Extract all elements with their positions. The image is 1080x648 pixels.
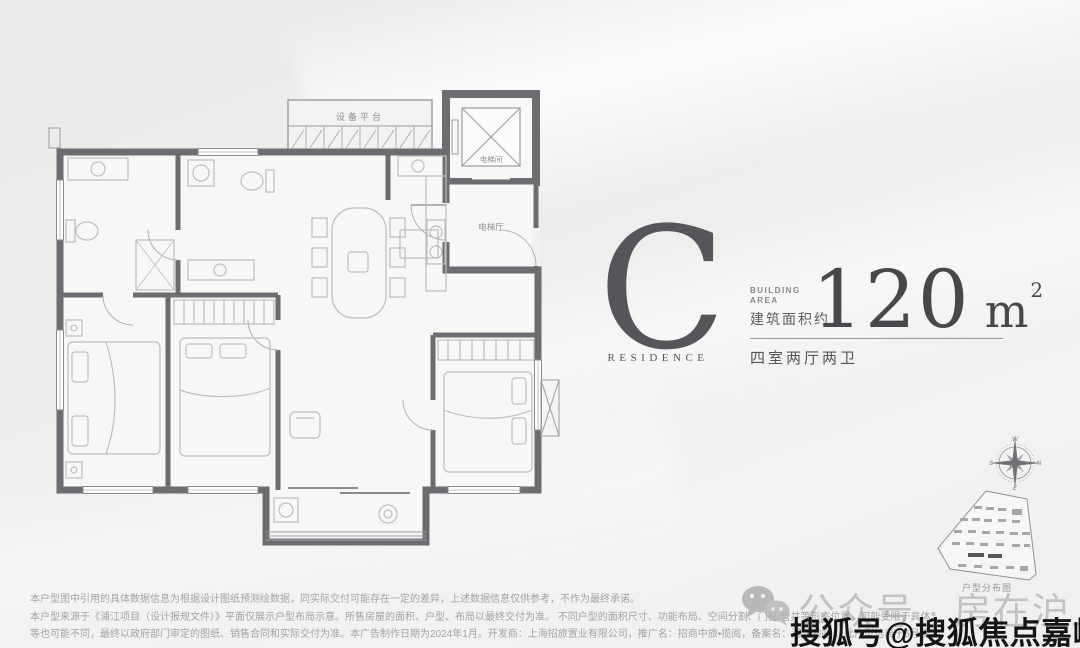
area-value: 120	[812, 253, 971, 346]
floorplan-drawing: 设备平台 电梯间 电梯厅	[48, 80, 573, 575]
residence-label: RESIDENCE	[594, 352, 722, 364]
area-unit-exponent: 2	[1030, 278, 1043, 302]
compass-icon: W N E S	[986, 434, 1044, 492]
compass-letter-top: W	[1012, 437, 1019, 443]
area-figure: 120m2	[812, 260, 1043, 340]
divider-line	[750, 338, 1003, 339]
site-plan-map	[928, 486, 1052, 588]
building-area-en-line1: BUILDING	[750, 286, 801, 296]
area-unit: m	[985, 284, 1029, 338]
unit-letter: C	[598, 216, 718, 364]
floorplan-ad-page: 设备平台 电梯间 电梯厅	[0, 0, 1080, 648]
elevator-shaft-label: 电梯间	[480, 154, 503, 164]
wechat-icon	[740, 584, 792, 628]
room-layout-text: 四室两厅两卫	[750, 347, 858, 368]
building-area-label-en: BUILDING AREA	[750, 286, 801, 307]
building-area-en-line2: AREA	[750, 296, 801, 306]
elevator-hall: 电梯厅	[446, 182, 540, 270]
equipment-platform-label: 设备平台	[336, 111, 384, 122]
compass-letter-right: N	[1037, 461, 1042, 467]
compass-letter-left: S	[989, 461, 993, 467]
sohu-watermark-text: 搜狐号@搜狐焦点嘉峪关站	[790, 608, 1080, 648]
equipment-platform: 设备平台	[288, 100, 432, 150]
elevator-shaft: 电梯间	[446, 94, 536, 186]
